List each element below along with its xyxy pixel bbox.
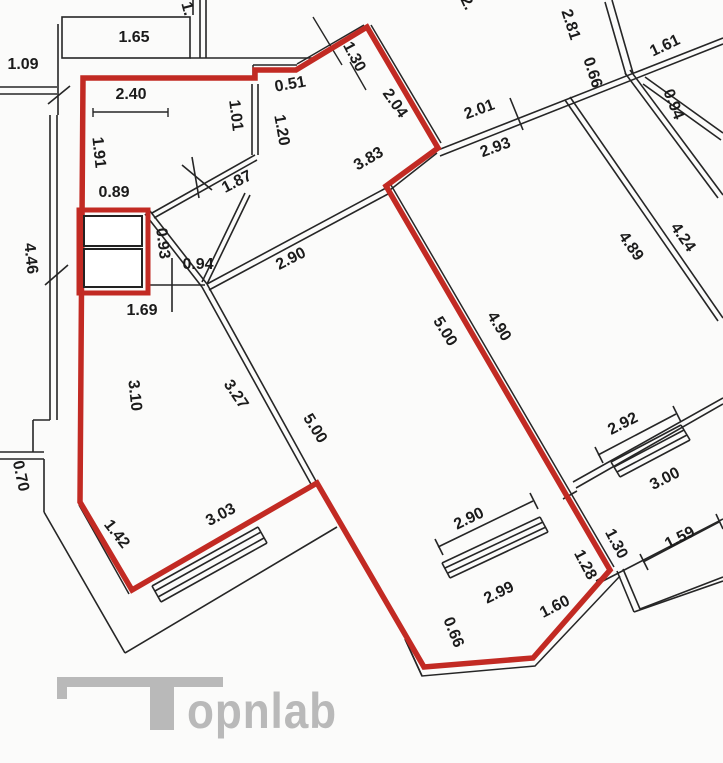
dim-tick	[48, 86, 70, 104]
dimension-label: 2.81	[557, 7, 583, 42]
wall-segment	[570, 97, 723, 318]
dimension-label: 1.59	[662, 523, 698, 552]
dimension-label: 1.28	[570, 547, 600, 583]
dimension-label: 4.24	[667, 220, 699, 255]
dimension-label: 4.90	[483, 309, 514, 345]
dimension-label: 1.69	[126, 302, 157, 319]
dimension-label: 0.66	[439, 615, 466, 650]
dimension-label: 0.94	[182, 256, 213, 273]
wall-segment	[209, 194, 388, 290]
window-bar	[450, 532, 548, 578]
dimension-label: 3.03	[203, 500, 239, 530]
dimension-label: 0.70	[9, 459, 32, 493]
dimension-label: 0.89	[98, 184, 129, 201]
dimension-label: 2.40	[115, 86, 146, 103]
floor-plan-page: 1.651.1.092.401.910.890.511.302.041.011.…	[0, 0, 723, 763]
outline-hug-lines	[79, 25, 620, 676]
dimension-label: 0.93	[152, 227, 173, 260]
dimension-label: 3.83	[351, 144, 387, 174]
dimension-label: 3.10	[124, 379, 144, 412]
dim-tick	[435, 539, 443, 555]
wall-segment	[640, 577, 723, 609]
wall-segment	[371, 25, 441, 143]
unit-outline-red	[80, 27, 610, 667]
wall-segment	[617, 571, 634, 612]
dimension-label: 1.20	[270, 113, 292, 147]
dimension-label: 2.01	[462, 96, 497, 123]
inner-walls	[145, 84, 388, 486]
dimension-label: 2.90	[451, 504, 487, 533]
dimension-label: 5.00	[429, 314, 460, 350]
window-bar	[448, 527, 546, 573]
wall-segment	[576, 404, 723, 488]
dimension-label: 1.09	[7, 56, 38, 73]
watermark-t-stem	[150, 677, 174, 730]
wall-segment	[565, 100, 718, 321]
dimension-label: 4.46	[20, 242, 40, 275]
dimension-label: 2.90	[273, 244, 309, 273]
dim-tick	[673, 406, 681, 422]
wall-segment	[202, 287, 312, 486]
balcony-window-lower	[84, 249, 142, 287]
dimension-label: 0.94	[659, 87, 686, 122]
dimension-label: 2.	[457, 0, 478, 13]
window-bar	[442, 563, 450, 578]
dim-tick	[595, 447, 603, 463]
wall-segment	[207, 188, 386, 284]
dimension-label: 1.65	[118, 29, 149, 46]
wall-segment	[391, 185, 614, 567]
dimension-label: 1.30	[339, 39, 369, 75]
dimension-label: 1.	[177, 0, 197, 17]
dimension-label: 2.99	[481, 578, 517, 607]
bottom-left-window	[152, 527, 267, 602]
wall-segment	[390, 153, 437, 190]
wall-segment	[438, 38, 723, 150]
dimension-label: 1.01	[225, 99, 246, 132]
dimension-label: 2.92	[605, 409, 641, 438]
dimension-label: 1.30	[601, 526, 631, 562]
floor-plan-drawing: 1.651.1.092.401.910.890.511.302.041.011.…	[0, 0, 723, 763]
highlighted-unit	[79, 27, 610, 667]
wall-segment	[145, 214, 202, 287]
dimension-label: 4.89	[615, 229, 647, 264]
wall-segment	[573, 398, 723, 482]
dimension-label: 0.66	[579, 55, 605, 90]
dimension-label: 1.91	[88, 136, 108, 169]
balcony-window-upper	[84, 216, 142, 246]
watermark-logo: opnlab	[57, 677, 337, 739]
wall-segment	[634, 581, 723, 612]
neighbor-walls	[0, 0, 337, 653]
wall-segment	[623, 569, 640, 609]
dimension-label: 5.00	[299, 411, 330, 447]
dimension-label: 0.51	[273, 73, 307, 95]
dimension-label: 3.00	[647, 464, 683, 493]
watermark-text: opnlab	[187, 683, 337, 739]
dimension-label: 3.27	[220, 377, 252, 412]
